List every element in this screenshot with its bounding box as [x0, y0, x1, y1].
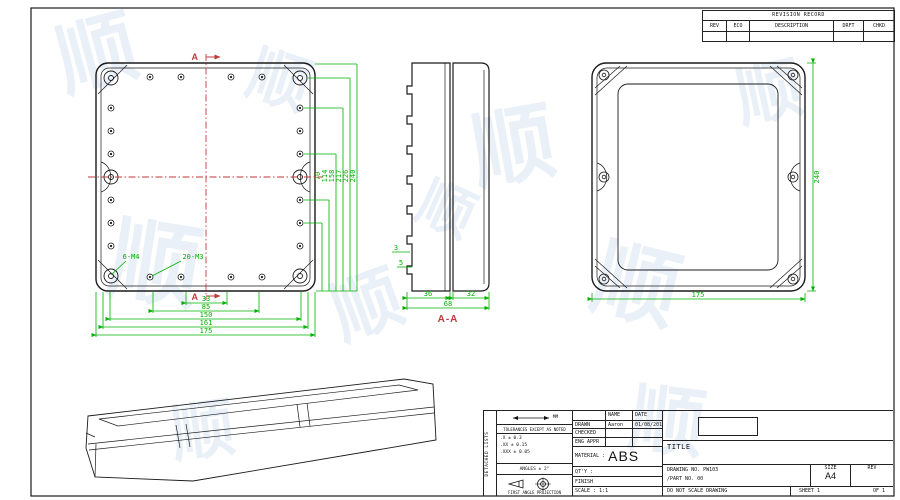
svg-text:33: 33 — [202, 295, 210, 303]
approvals-table: NAME DATE DRAWN Aaron 01/08/2015 CHECKED… — [573, 411, 662, 447]
section-view-label: A-A — [438, 314, 459, 325]
material-cell: MATERIAL : ABS — [573, 447, 662, 467]
revision-col-drft: DRFT — [833, 21, 863, 31]
lid-screws — [599, 70, 798, 284]
svg-text:161: 161 — [200, 319, 213, 327]
back-view-dimensions — [592, 63, 816, 302]
revision-col-rev: REV — [703, 21, 726, 31]
note-row: DO NOT SCALE DRAWING SHEET 1 OF 1 — [663, 487, 893, 496]
perimeter-thread-label: 20-M3 — [182, 253, 203, 261]
revision-cell — [833, 32, 863, 41]
approval-date — [632, 429, 662, 437]
revision-cell — [703, 32, 726, 41]
units-label: MM — [553, 415, 558, 420]
title-block: DETACHED LISTS MM TOLERANCES EXCEPT AS N… — [483, 410, 893, 496]
side-strip-label: DETACHED LISTS — [485, 431, 490, 476]
tolerance-row: .XX ± 0.15 — [500, 442, 569, 449]
revision-table: REVISION RECORD REV ECO DESCRIPTION DRFT… — [702, 10, 895, 42]
revision-col-eco: ECO — [726, 21, 749, 31]
angles-tolerance: ANGLES ± 2° — [497, 464, 572, 475]
tolerance-block: MM TOLERANCES EXCEPT AS NOTED .X ± 0.3 .… — [497, 411, 573, 496]
approval-name — [605, 438, 632, 446]
front-view-dimensions — [96, 64, 357, 337]
of-label: OF 1 — [873, 487, 885, 496]
approval-date — [632, 438, 662, 446]
part-no-value: 00 — [697, 476, 703, 482]
title-block-right: TITLE DRAWING NO. PW103 /PART NO. 00 SIZ… — [663, 411, 893, 496]
name-header: NAME — [605, 411, 632, 420]
revision-cell — [749, 32, 833, 41]
revision-cell — [863, 32, 894, 41]
section-marker-top: A — [192, 52, 199, 62]
svg-text:32: 32 — [467, 290, 475, 298]
drawing-no-value: PW103 — [703, 467, 718, 473]
drawing-number-row: DRAWING NO. PW103 /PART NO. 00 SIZE A4 R… — [663, 465, 893, 487]
dimension-style-row: MM — [497, 411, 572, 425]
tolerance-row: .XXX ± 0.05 — [500, 449, 569, 456]
svg-text:5: 5 — [399, 259, 403, 267]
approval-name — [605, 429, 632, 437]
tolerance-row: .X ± 0.3 — [500, 435, 569, 442]
no-scale-note: DO NOT SCALE DRAWING — [663, 487, 790, 496]
title-cell: TITLE — [663, 441, 893, 465]
material-label: MATERIAL : — [575, 453, 605, 459]
isometric-view — [86, 379, 436, 481]
tolerance-table: .X ± 0.3 .XX ± 0.15 .XXX ± 0.05 — [497, 434, 572, 464]
rev-label: REV — [851, 465, 893, 471]
title-block-middle: NAME DATE DRAWN Aaron 01/08/2015 CHECKED… — [573, 411, 663, 496]
logo-box — [698, 417, 758, 436]
title-block-side-strip: DETACHED LISTS — [484, 411, 497, 496]
section-view-dimensions — [392, 252, 489, 310]
revision-col-chkd: CHKD — [863, 21, 894, 31]
svg-text:150: 150 — [200, 311, 213, 319]
material-value: ABS — [608, 448, 639, 464]
drawing-sheet: 顺 顺 顺 顺 顺 顺 顺 顺 顺 顺 — [0, 0, 900, 500]
revision-col-description: DESCRIPTION — [749, 21, 833, 31]
section-marker-bottom: A — [192, 292, 199, 302]
scale-cell: SCALE : 1:1 — [573, 487, 662, 496]
svg-text:240: 240 — [813, 171, 821, 184]
rev-cell: REV — [850, 465, 893, 486]
date-header: DATE — [632, 411, 662, 420]
size-value: A4 — [811, 471, 850, 481]
dimension-arrow-icon — [511, 414, 551, 422]
svg-text:3: 3 — [394, 244, 398, 252]
back-view-dim-text: 240 175 — [692, 171, 821, 299]
revision-cell — [726, 32, 749, 41]
approval-role: DRAWN — [573, 421, 605, 429]
approval-name: Aaron — [605, 421, 632, 429]
part-no-label: /PART NO. — [667, 476, 694, 482]
logo-cell — [663, 411, 893, 441]
finish-cell: FINISH — [573, 477, 662, 487]
drawing-no-label: DRAWING NO. — [667, 467, 700, 473]
svg-text:175: 175 — [692, 291, 705, 299]
sheet-cell: SHEET 1 OF 1 — [790, 487, 893, 496]
svg-text:240: 240 — [349, 170, 357, 183]
qty-cell: QT'Y : — [573, 467, 662, 477]
first-angle-projection-icon — [505, 477, 565, 491]
approval-role: ENG APPR — [573, 438, 605, 446]
approval-date: 01/08/2015 — [632, 421, 662, 429]
sheet-label: SHEET 1 — [799, 487, 820, 496]
tolerance-heading: TOLERANCES EXCEPT AS NOTED — [497, 425, 572, 434]
back-view — [592, 63, 805, 291]
approval-role: CHECKED — [573, 429, 605, 437]
svg-text:36: 36 — [424, 290, 432, 298]
projection-label: FIRST ANGLE PROJECTION — [497, 490, 572, 495]
drawing-number-cell: DRAWING NO. PW103 /PART NO. 00 — [663, 465, 810, 486]
svg-text:68: 68 — [444, 300, 452, 308]
projection-cell: FIRST ANGLE PROJECTION — [497, 475, 572, 496]
svg-text:175: 175 — [200, 327, 213, 335]
size-cell: SIZE A4 — [810, 465, 850, 486]
corner-thread-label: 6-M4 — [123, 253, 140, 261]
section-view — [407, 63, 489, 291]
svg-text:85: 85 — [202, 303, 210, 311]
approvals-corner — [573, 411, 605, 420]
revision-table-title: REVISION RECORD — [703, 11, 894, 21]
